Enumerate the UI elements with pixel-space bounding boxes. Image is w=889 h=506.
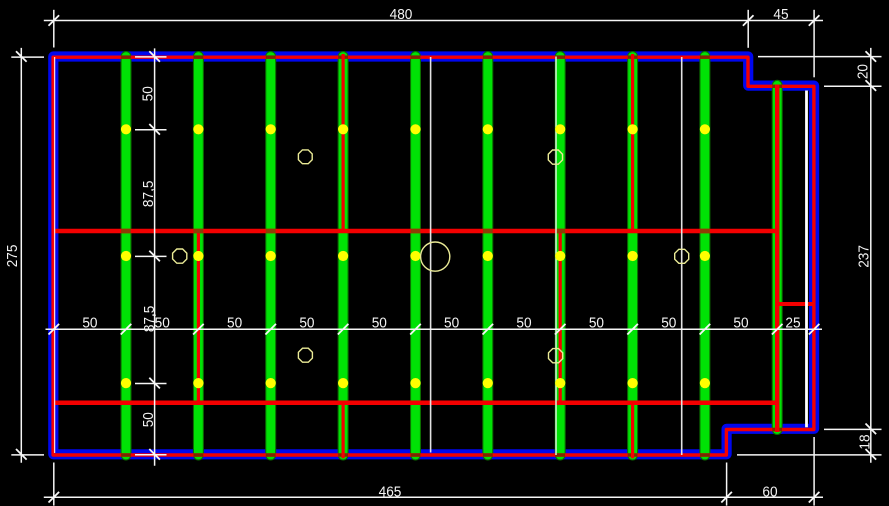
svg-text:25: 25	[785, 315, 800, 332]
svg-text:18: 18	[857, 434, 874, 449]
svg-text:237: 237	[856, 245, 873, 268]
svg-text:480: 480	[390, 6, 413, 23]
svg-text:50: 50	[733, 315, 748, 332]
svg-text:50: 50	[227, 315, 242, 332]
svg-text:50: 50	[141, 412, 158, 427]
svg-text:50: 50	[155, 315, 170, 332]
svg-text:87,5: 87,5	[141, 181, 158, 208]
svg-text:275: 275	[4, 244, 21, 267]
svg-text:50: 50	[589, 315, 604, 332]
svg-text:50: 50	[299, 315, 314, 332]
svg-text:20: 20	[855, 64, 872, 79]
svg-text:50: 50	[372, 315, 387, 332]
svg-text:50: 50	[82, 315, 97, 332]
svg-text:60: 60	[762, 484, 777, 501]
svg-text:50: 50	[444, 315, 459, 332]
svg-text:50: 50	[661, 315, 676, 332]
svg-text:50: 50	[516, 315, 531, 332]
svg-text:465: 465	[379, 484, 402, 501]
svg-text:45: 45	[773, 6, 788, 23]
svg-text:50: 50	[140, 86, 157, 101]
